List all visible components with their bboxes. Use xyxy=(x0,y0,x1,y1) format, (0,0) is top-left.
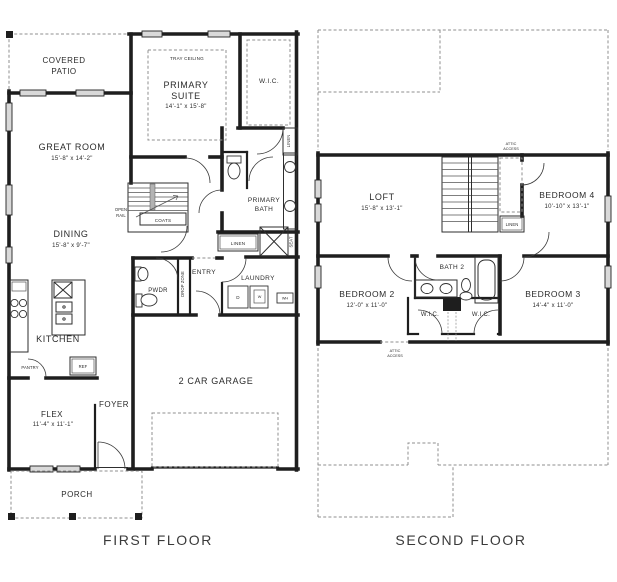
open-rail-label: OPEN xyxy=(115,207,127,212)
kitchen-fixtures xyxy=(10,280,96,375)
seat-label: SEAT xyxy=(289,236,294,247)
kitchen-label: KITCHEN xyxy=(36,334,80,344)
flex-label: FLEX xyxy=(41,410,63,419)
primary-suite-label: PRIMARY xyxy=(163,80,208,90)
primary-bath-label: PRIMARY xyxy=(248,197,281,204)
attic-chase-outline xyxy=(500,158,522,212)
washer-label: W xyxy=(258,295,262,299)
loft-dims: 15'-8" x 13'-1" xyxy=(361,206,402,212)
dryer-label: D xyxy=(236,295,240,300)
great-room-dims: 15'-8" x 14'-2" xyxy=(51,156,92,162)
primary-bath-fixtures xyxy=(227,153,297,229)
water-heater-label: WH xyxy=(282,297,289,301)
bath2-label: BATH 2 xyxy=(440,264,465,271)
attic-access-top-label: ATTIC xyxy=(506,142,517,146)
primary-suite-label2: SUITE xyxy=(171,91,201,101)
second-floor-exterior-walls xyxy=(318,153,608,344)
attic-access-bottom-label2: ACCESS xyxy=(387,354,403,358)
refrigerator-label: REF xyxy=(79,364,88,369)
bedroom4-label: BEDROOM 4 xyxy=(539,190,595,200)
first-floor-caption: FIRST FLOOR xyxy=(103,532,213,548)
hall-linen-label: LINEN xyxy=(231,241,246,246)
primary-suite-dims: 14'-1" x 15'-8" xyxy=(165,104,206,110)
upstairs-staircase xyxy=(442,157,498,232)
kitchen-island xyxy=(52,280,85,335)
bedroom2-dims: 12'-0" x 11'-0" xyxy=(347,303,388,309)
pwdr-label: PWDR xyxy=(148,288,168,294)
powder-room-fixtures xyxy=(135,267,157,307)
attic-access-top-label2: ACCESS xyxy=(503,147,519,151)
second-floor-caption: SECOND FLOOR xyxy=(395,532,526,548)
roof-outline-top xyxy=(318,30,608,150)
bedroom3-dims: 14'-4" x 11'-0" xyxy=(533,303,574,309)
dining-label: DINING xyxy=(53,229,88,239)
second-floor-interior-walls xyxy=(318,155,608,341)
attic-access-bottom-label: ATTIC xyxy=(390,349,401,353)
coats-label: COATS xyxy=(155,218,171,223)
dining-dims: 15'-8" x 9'-7" xyxy=(52,243,90,249)
upstairs-linen-label: LINEN xyxy=(506,222,519,227)
garage-label: 2 CAR GARAGE xyxy=(179,376,254,386)
foyer-label: FOYER xyxy=(99,400,129,409)
bedroom3-label: BEDROOM 3 xyxy=(525,289,581,299)
wic-label: W.I.C. xyxy=(259,78,279,85)
primary-bath-label2: BATH xyxy=(255,206,273,213)
bedroom2-label: BEDROOM 2 xyxy=(339,289,395,299)
entry-label: ENTRY xyxy=(192,269,216,276)
flex-dims: 11'-4" x 11'-1" xyxy=(33,422,74,428)
pantry-label: PANTRY xyxy=(21,365,38,370)
linen-closet-label: LINEN xyxy=(286,135,291,148)
wic-right-label: W.I.C. xyxy=(472,312,490,318)
porch-label: PORCH xyxy=(61,490,92,499)
floor-plan-page: COVERED PATIO TRAY CEILING PRIMARY SUITE… xyxy=(0,0,617,582)
wic-left-label: W.I.C. xyxy=(421,312,439,318)
tray-ceiling-label: TRAY CEILING xyxy=(170,56,204,61)
floor-plan-drawing: COVERED PATIO TRAY CEILING PRIMARY SUITE… xyxy=(0,0,617,582)
drop-zone-label: DROP ZONE xyxy=(180,271,185,297)
covered-patio-label2: PATIO xyxy=(51,67,76,76)
loft-label: LOFT xyxy=(369,192,394,202)
second-floor-plan: ATTIC ACCESS LOFT 15'-8" x 13'-1" BEDROO… xyxy=(315,30,611,548)
open-rail-label2: RAIL xyxy=(116,213,126,218)
laundry-label: LAUNDRY xyxy=(241,275,275,282)
garage-door-outline xyxy=(152,413,278,467)
covered-patio-label: COVERED xyxy=(42,56,85,65)
roof-outline-bottom xyxy=(318,348,608,517)
bedroom4-dims: 10'-10" x 13'-1" xyxy=(544,204,589,210)
first-floor-plan: COVERED PATIO TRAY CEILING PRIMARY SUITE… xyxy=(6,31,298,548)
great-room-label: GREAT ROOM xyxy=(39,142,106,152)
